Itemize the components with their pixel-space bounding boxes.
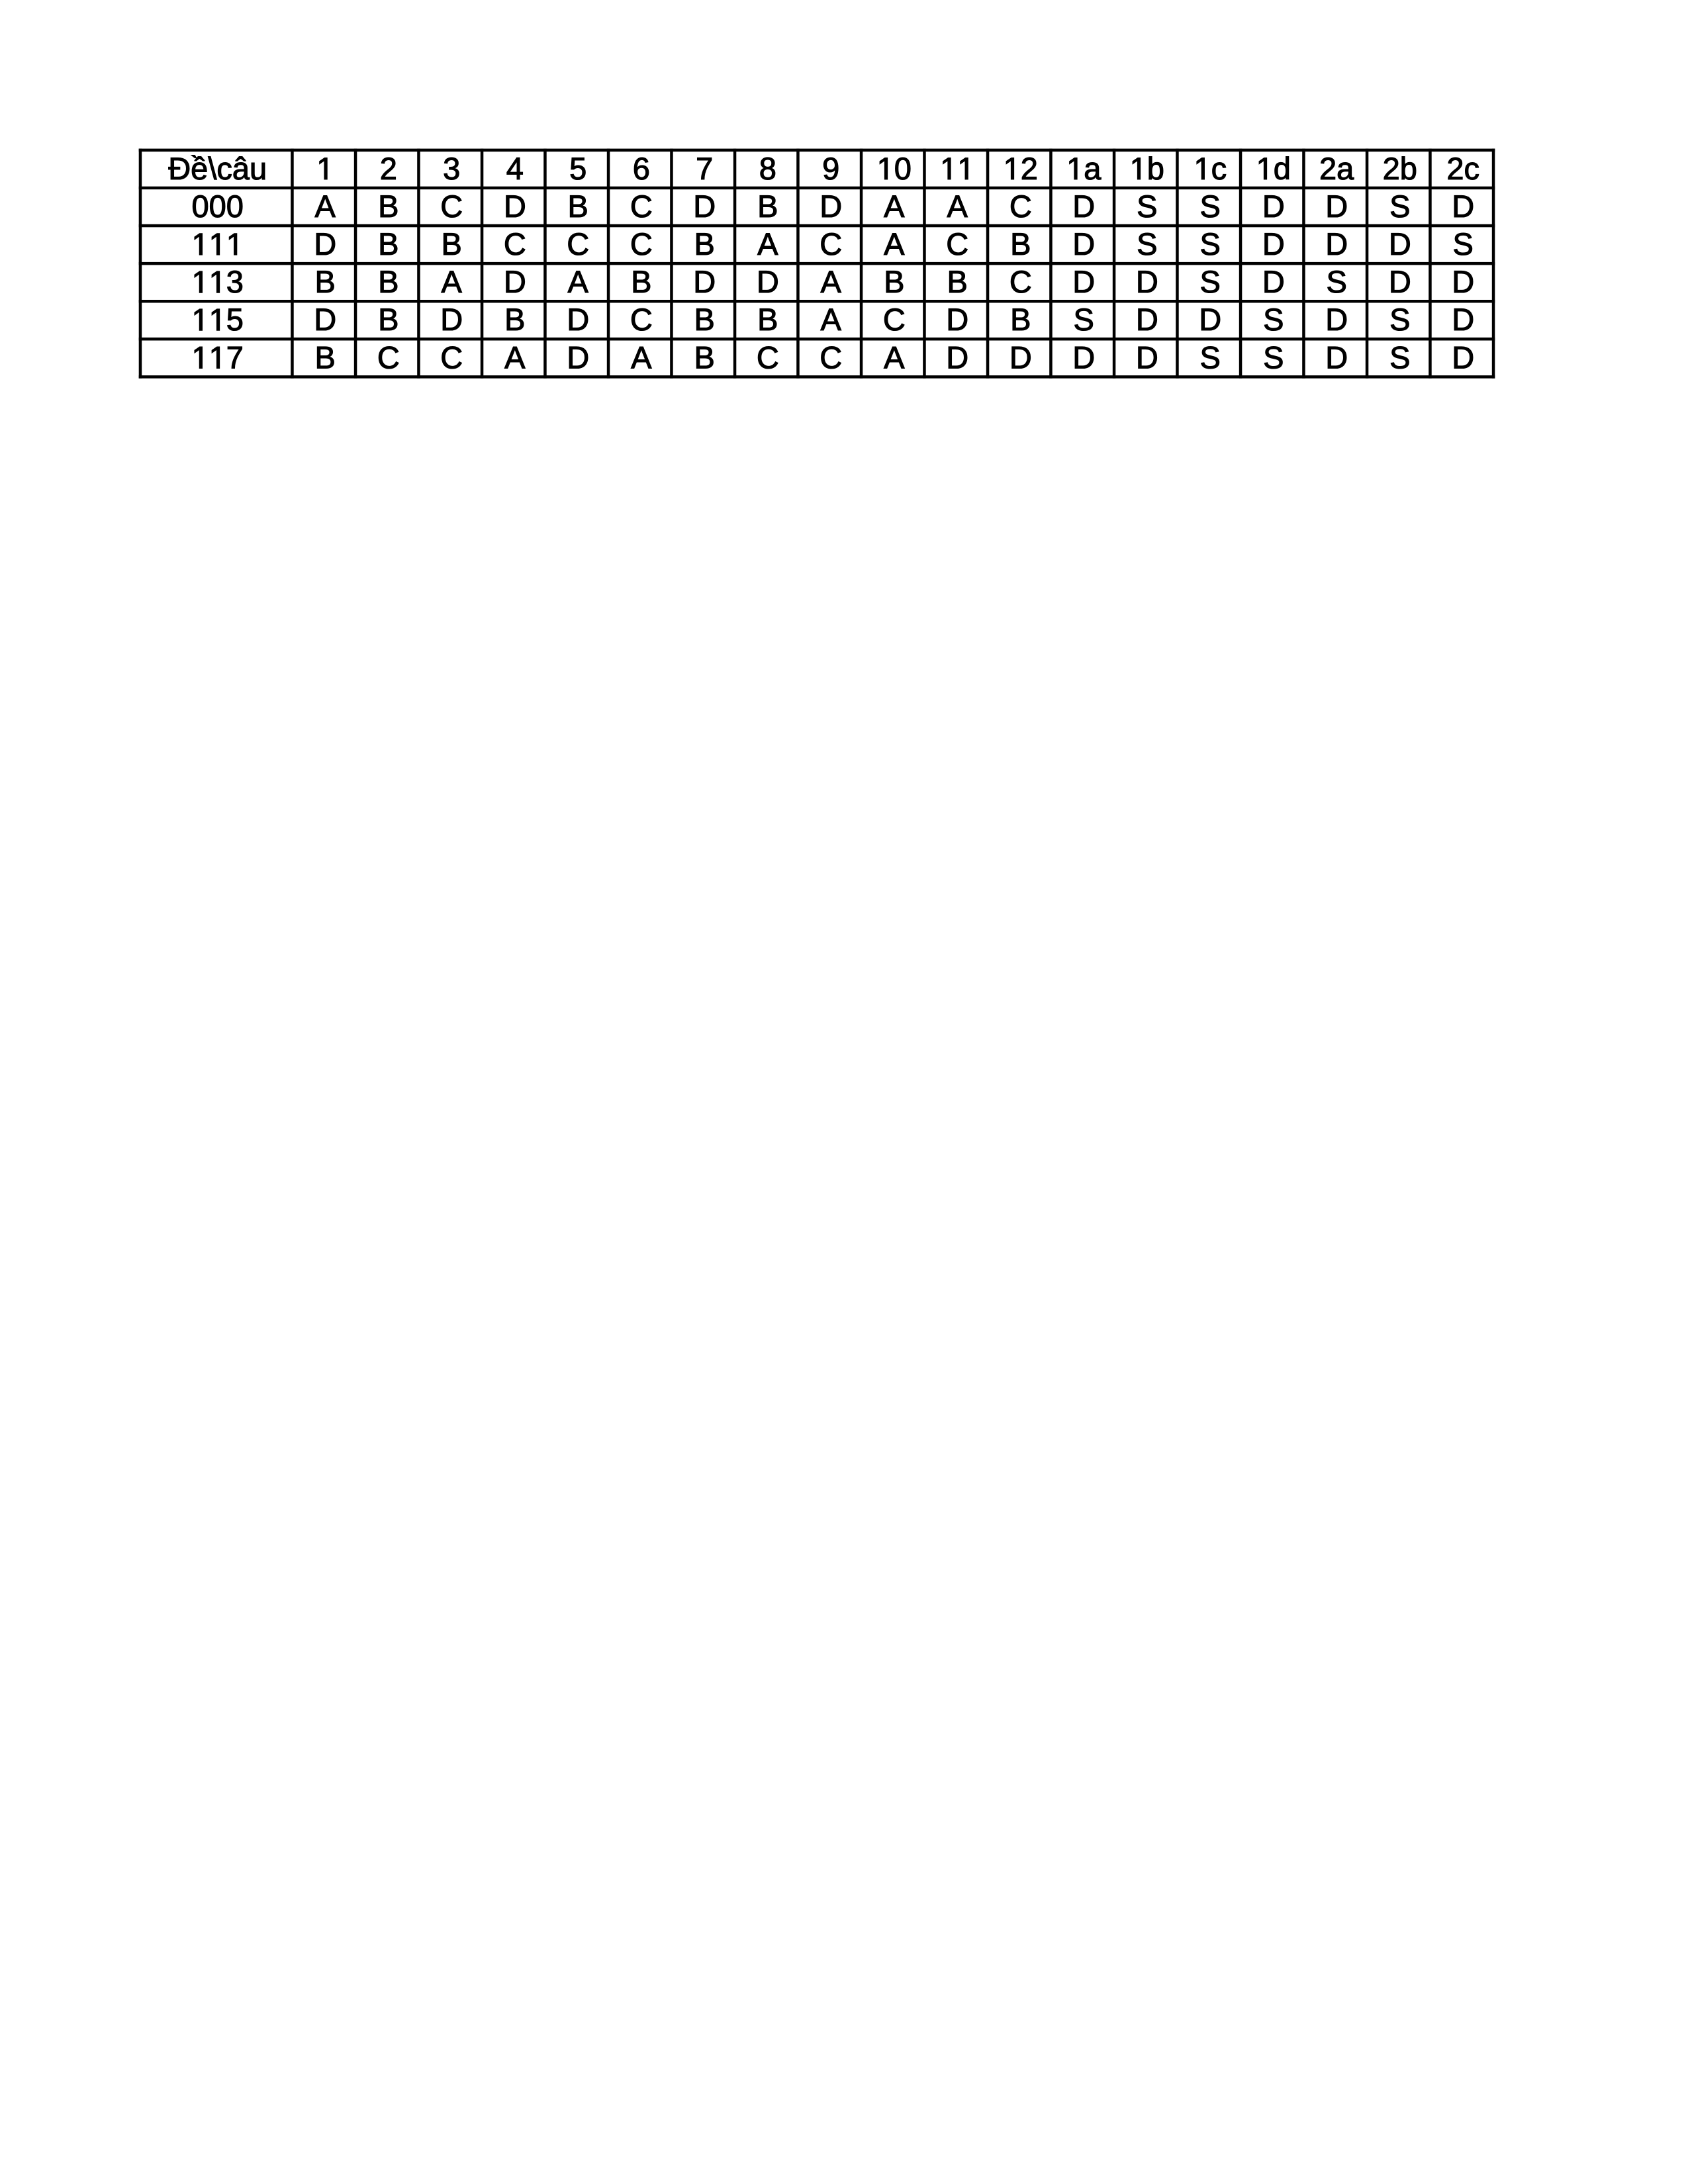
svg-text:C: C	[630, 226, 653, 261]
svg-text:2b: 2b	[1383, 151, 1417, 186]
svg-text:9: 9	[822, 151, 839, 186]
svg-text:S: S	[1389, 302, 1410, 337]
svg-text:c: c	[1211, 151, 1227, 186]
svg-text:2c: 2c	[1446, 151, 1479, 186]
svg-text:S: S	[1200, 226, 1221, 261]
svg-text:C: C	[757, 340, 779, 375]
svg-text:B: B	[694, 340, 715, 375]
svg-text:D: D	[1325, 226, 1348, 261]
svg-text:D: D	[1452, 189, 1474, 224]
svg-text:C: C	[504, 226, 526, 261]
svg-text:B: B	[442, 226, 462, 261]
svg-text:0: 0	[894, 151, 912, 186]
svg-text:A: A	[884, 226, 905, 261]
svg-text:B: B	[631, 264, 651, 299]
svg-text:D: D	[1262, 264, 1285, 299]
svg-text:C: C	[630, 302, 653, 337]
svg-text:S: S	[1137, 189, 1157, 224]
svg-text:D: D	[1199, 302, 1221, 337]
svg-text:D: D	[1009, 340, 1032, 375]
svg-text:S: S	[1200, 340, 1221, 375]
svg-text:A: A	[884, 340, 905, 375]
svg-text:d: d	[1274, 151, 1291, 186]
svg-text:D: D	[1325, 189, 1348, 224]
svg-text:2: 2	[380, 151, 397, 186]
svg-text:3: 3	[443, 151, 460, 186]
svg-text:B: B	[315, 264, 336, 299]
svg-text:S: S	[1453, 226, 1474, 261]
svg-text:D: D	[440, 302, 463, 337]
svg-text:7: 7	[226, 340, 244, 375]
svg-text:D: D	[693, 189, 716, 224]
svg-text:C: C	[630, 189, 653, 224]
svg-text:A: A	[631, 340, 652, 375]
svg-text:5: 5	[569, 151, 586, 186]
svg-text:S: S	[1200, 189, 1221, 224]
svg-text:D: D	[1136, 302, 1158, 337]
svg-text:D: D	[1452, 340, 1474, 375]
svg-text:B: B	[757, 189, 778, 224]
svg-text:S: S	[1389, 189, 1410, 224]
svg-text:D: D	[693, 264, 716, 299]
svg-text:D: D	[1325, 302, 1348, 337]
svg-text:S: S	[1263, 340, 1284, 375]
svg-text:C: C	[440, 340, 463, 375]
svg-text:D: D	[1072, 189, 1095, 224]
svg-text:C: C	[946, 226, 968, 261]
svg-text:C: C	[883, 302, 906, 337]
svg-text:S: S	[1263, 302, 1284, 337]
svg-text:S: S	[1327, 264, 1347, 299]
svg-text:B: B	[694, 226, 715, 261]
svg-text:8: 8	[759, 151, 776, 186]
svg-text:D: D	[314, 302, 336, 337]
svg-text:a: a	[1084, 151, 1102, 186]
svg-text:6: 6	[633, 151, 650, 186]
svg-text:A: A	[821, 302, 842, 337]
svg-text:D: D	[1136, 264, 1158, 299]
svg-text:Đề\câu: Đề\câu	[168, 151, 267, 186]
svg-text:D: D	[757, 264, 779, 299]
svg-text:C: C	[1009, 189, 1032, 224]
svg-text:A: A	[821, 264, 842, 299]
svg-text:5: 5	[226, 302, 244, 337]
svg-text:A: A	[504, 340, 526, 375]
svg-text:B: B	[947, 264, 968, 299]
svg-text:D: D	[1452, 302, 1474, 337]
svg-text:D: D	[1389, 264, 1411, 299]
svg-text:S: S	[1389, 340, 1410, 375]
svg-text:D: D	[504, 189, 526, 224]
svg-text:7: 7	[696, 151, 713, 186]
svg-text:4: 4	[506, 151, 524, 186]
svg-text:S: S	[1200, 264, 1221, 299]
svg-text:A: A	[315, 189, 336, 224]
svg-text:D: D	[567, 302, 589, 337]
svg-text:D: D	[946, 302, 968, 337]
svg-text:B: B	[378, 264, 399, 299]
svg-text:S: S	[1137, 226, 1157, 261]
svg-text:A: A	[757, 226, 778, 261]
svg-text:A: A	[568, 264, 589, 299]
svg-text:D: D	[1452, 264, 1474, 299]
svg-text:C: C	[377, 340, 400, 375]
svg-text:D: D	[1325, 340, 1348, 375]
svg-text:D: D	[946, 340, 968, 375]
svg-text:C: C	[440, 189, 463, 224]
svg-text:B: B	[568, 189, 588, 224]
svg-text:D: D	[1072, 340, 1095, 375]
svg-text:A: A	[947, 189, 968, 224]
svg-text:D: D	[504, 264, 526, 299]
svg-text:C: C	[820, 226, 842, 261]
svg-text:B: B	[1010, 302, 1031, 337]
svg-text:A: A	[884, 189, 905, 224]
svg-text:2: 2	[1021, 151, 1038, 186]
svg-text:2a: 2a	[1319, 151, 1354, 186]
svg-text:D: D	[1136, 340, 1158, 375]
svg-text:B: B	[694, 302, 715, 337]
svg-text:B: B	[378, 189, 399, 224]
svg-text:B: B	[1010, 226, 1031, 261]
svg-text:D: D	[314, 226, 336, 261]
svg-text:000: 000	[191, 189, 243, 224]
svg-text:3: 3	[226, 264, 244, 299]
svg-text:B: B	[378, 226, 399, 261]
svg-text:C: C	[820, 340, 842, 375]
svg-text:D: D	[1389, 226, 1411, 261]
svg-text:A: A	[442, 264, 463, 299]
svg-text:B: B	[378, 302, 399, 337]
svg-text:b: b	[1147, 151, 1164, 186]
svg-text:B: B	[504, 302, 525, 337]
svg-text:D: D	[1072, 226, 1095, 261]
svg-text:D: D	[1262, 226, 1285, 261]
svg-text:C: C	[567, 226, 589, 261]
svg-text:D: D	[1072, 264, 1095, 299]
svg-text:D: D	[820, 189, 842, 224]
svg-text:D: D	[567, 340, 589, 375]
svg-text:S: S	[1074, 302, 1094, 337]
svg-text:B: B	[757, 302, 778, 337]
svg-text:B: B	[884, 264, 904, 299]
svg-text:C: C	[1009, 264, 1032, 299]
svg-text:B: B	[315, 340, 336, 375]
svg-text:D: D	[1262, 189, 1285, 224]
